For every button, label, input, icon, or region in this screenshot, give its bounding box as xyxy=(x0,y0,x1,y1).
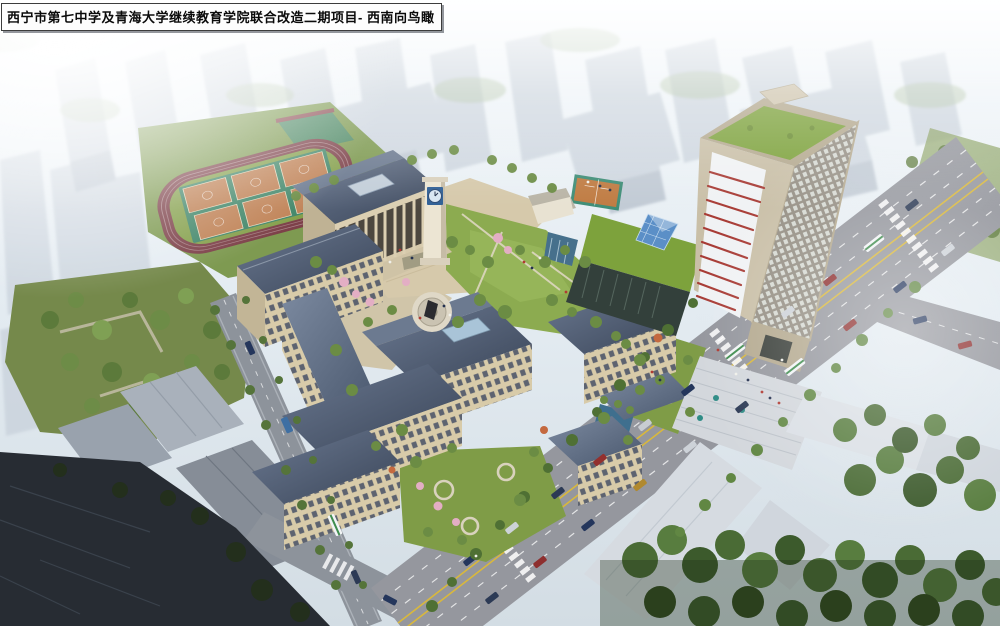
aerial-render-scene xyxy=(0,0,1000,626)
rendering-viewport: 西宁市第七中学及青海大学继续教育学院联合改造二期项目- 西南向鸟瞰 xyxy=(0,0,1000,626)
drawing-title-text: 西宁市第七中学及青海大学继续教育学院联合改造二期项目- 西南向鸟瞰 xyxy=(7,10,434,25)
drawing-title-bar: 西宁市第七中学及青海大学继续教育学院联合改造二期项目- 西南向鸟瞰 xyxy=(1,3,442,31)
